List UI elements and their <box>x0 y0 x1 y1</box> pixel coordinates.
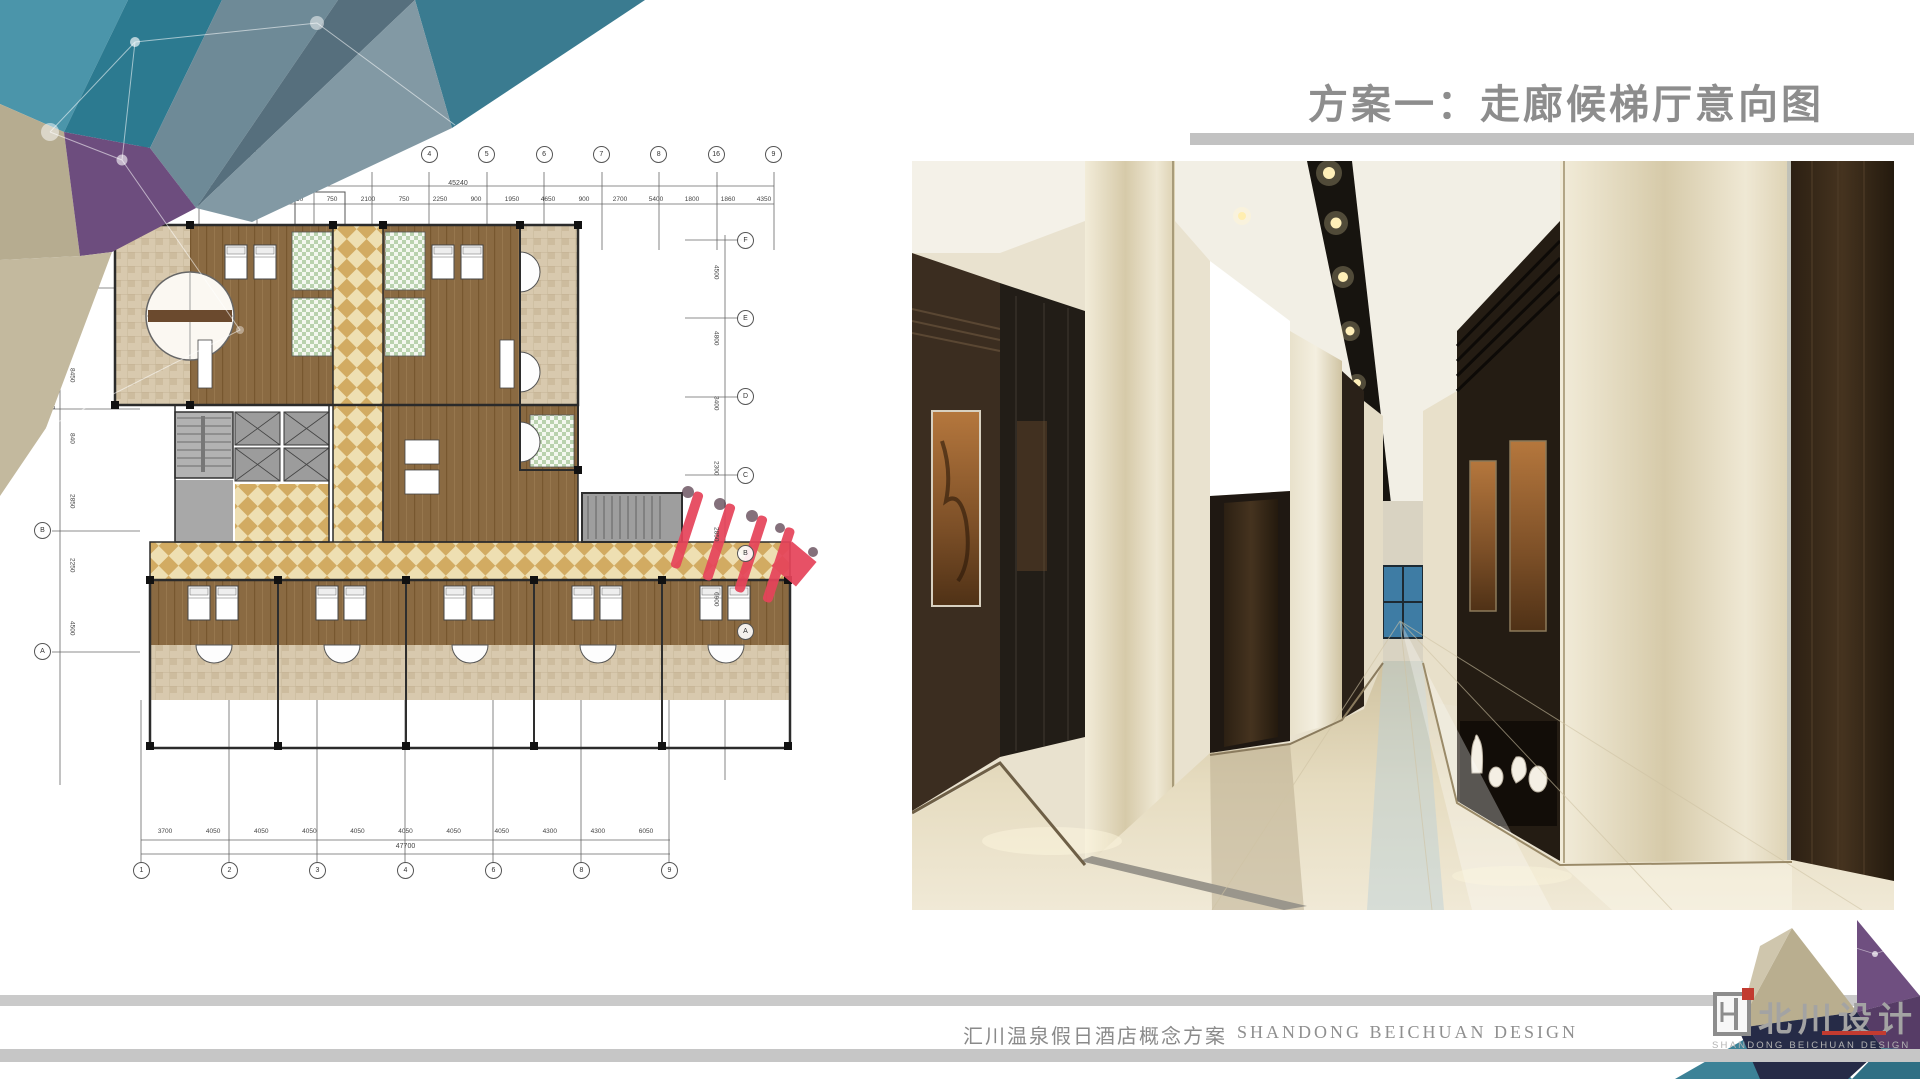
footer-rule-bottom <box>0 1049 1920 1062</box>
dim-value: 4300 <box>574 828 622 835</box>
dim-value: 6050 <box>622 828 670 835</box>
guest-room-row <box>150 580 790 645</box>
corridor-rendering <box>912 161 1894 910</box>
dim-value: 6900 <box>710 567 722 632</box>
dim-value: 1800 <box>674 196 710 203</box>
dim-value: 3700 <box>141 828 189 835</box>
dim-value: 4800 <box>710 305 722 370</box>
dims-right: 450048003400230028506900 <box>710 240 722 632</box>
wall-artwork-right-2 <box>1510 441 1546 631</box>
grid-bubble: D <box>737 388 754 405</box>
grid-bubble: 1 <box>133 862 150 879</box>
corner-decoration-top-left <box>0 0 650 500</box>
downlight <box>1238 212 1246 220</box>
cream-pillar-1 <box>1085 161 1175 873</box>
title-underline-bar <box>1190 133 1914 145</box>
door-reflection <box>1210 743 1304 910</box>
network-dot <box>1872 951 1878 957</box>
dim-value: 4500 <box>66 597 78 660</box>
presentation-slide: 方案一：走廊候梯厅意向图 <box>0 0 1920 1079</box>
dim-value: 4050 <box>333 828 381 835</box>
stairwell-right <box>582 493 682 542</box>
beichuan-logo-icon <box>1712 988 1756 1038</box>
logo-red-square <box>1742 988 1754 1000</box>
cream-pillar-2 <box>1560 161 1792 910</box>
grid-bubble: C <box>737 467 754 484</box>
dim-value: 4050 <box>430 828 478 835</box>
footer-project-name: 汇川温泉假日酒店概念方案 <box>963 1020 1227 1049</box>
dim-value: 3400 <box>710 371 722 436</box>
grid-bubble: 8 <box>573 862 590 879</box>
logo-red-underline <box>1822 1031 1886 1035</box>
dim-value: 4300 <box>526 828 574 835</box>
dim-value: 1860 <box>710 196 746 203</box>
grid-bubble: 4 <box>397 862 414 879</box>
grid-bubble: 3 <box>309 862 326 879</box>
wall-artwork-right-1 <box>1470 461 1496 611</box>
dim-total-bottom: 47700 <box>141 843 670 850</box>
dims-bottom: 3700405040504050405040504050405043004300… <box>141 828 670 835</box>
corridor-horizontal <box>150 542 790 580</box>
dim-value: 2300 <box>710 436 722 501</box>
dim-value: 4050 <box>285 828 333 835</box>
wood-column-right <box>1791 161 1894 910</box>
page-title: 方案一：走廊候梯厅意向图 <box>1308 72 1824 130</box>
grid-bubble: 2 <box>221 862 238 879</box>
grid-bubble: 8 <box>650 146 667 163</box>
triangle-cluster <box>0 0 645 496</box>
footer-company-name: SHANDONG BEICHUAN DESIGN <box>1237 1022 1578 1043</box>
dim-value: 4500 <box>710 240 722 305</box>
grid-bubbles-bottom: 1234689 <box>133 862 678 879</box>
metal-trim <box>1787 161 1791 910</box>
wall-artwork-left <box>932 411 980 606</box>
grid-bubble: F <box>737 232 754 249</box>
grid-bubble: 9 <box>661 862 678 879</box>
grid-bubble: A <box>737 623 754 640</box>
network-lines <box>1792 928 1920 954</box>
grid-bubble: 9 <box>765 146 782 163</box>
grid-bubble: B <box>737 545 754 562</box>
dim-value: 4050 <box>237 828 285 835</box>
dim-value: 4050 <box>189 828 237 835</box>
grid-bubble: B <box>34 522 51 539</box>
dim-value: 4050 <box>478 828 526 835</box>
grid-bubble: A <box>34 643 51 660</box>
door-leaf <box>1224 499 1278 747</box>
grid-bubble: 6 <box>485 862 502 879</box>
grid-bubble: 16 <box>708 146 725 163</box>
dim-value: 4050 <box>381 828 429 835</box>
dim-value: 4350 <box>746 196 782 203</box>
dim-value: 2250 <box>66 533 78 596</box>
dim-value: 2850 <box>710 501 722 566</box>
grid-bubble: E <box>737 310 754 327</box>
grid-bubbles-right: FEDCBA <box>737 232 753 640</box>
